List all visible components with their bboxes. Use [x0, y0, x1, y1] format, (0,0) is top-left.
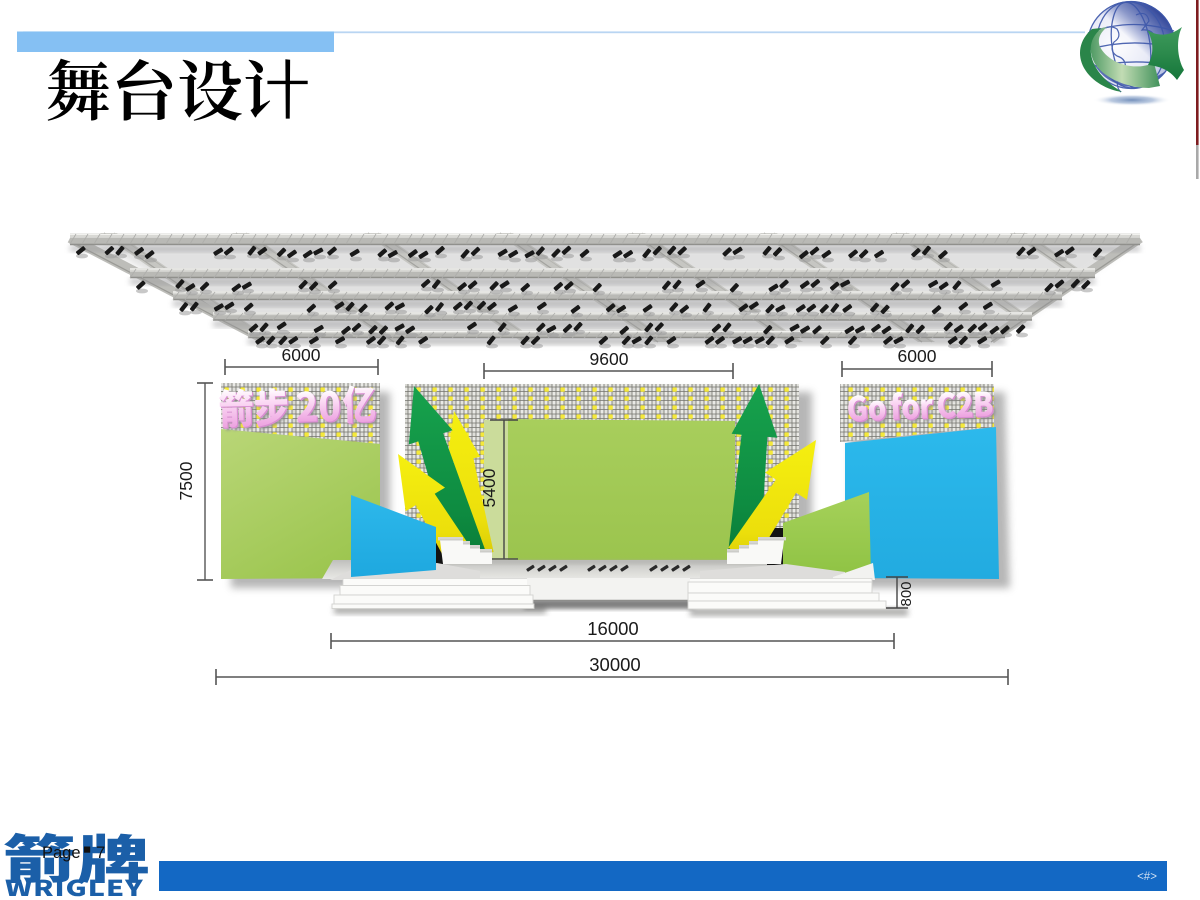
- svg-text:6000: 6000: [282, 345, 321, 365]
- svg-text:7: 7: [96, 844, 105, 862]
- svg-text:Page: Page: [42, 844, 81, 862]
- svg-text:7500: 7500: [176, 461, 196, 500]
- svg-text:16000: 16000: [587, 618, 638, 639]
- svg-text:6000: 6000: [898, 346, 937, 366]
- svg-text:800: 800: [898, 581, 915, 606]
- svg-text:30000: 30000: [589, 654, 640, 675]
- svg-text:9600: 9600: [590, 349, 629, 369]
- svg-text:<#>: <#>: [1137, 871, 1157, 883]
